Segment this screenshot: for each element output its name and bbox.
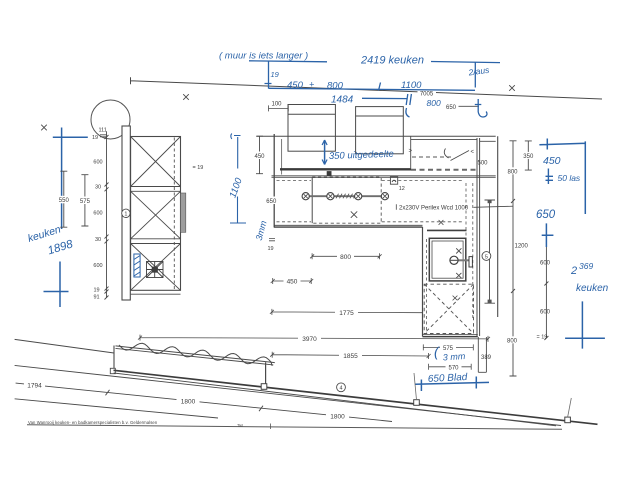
svg-text:800: 800: [427, 98, 441, 108]
svg-text:1775: 1775: [339, 310, 354, 317]
svg-text:19: 19: [93, 288, 99, 294]
svg-text:= 19: = 19: [193, 165, 204, 171]
svg-text:19: 19: [268, 246, 274, 252]
svg-text:2419 keuken: 2419 keuken: [360, 55, 424, 67]
svg-text:350 uitgedeelte: 350 uitgedeelte: [329, 149, 394, 162]
svg-text:+: +: [309, 80, 314, 90]
svg-text:100: 100: [271, 101, 282, 107]
svg-text:2: 2: [570, 265, 577, 277]
svg-text:30: 30: [95, 237, 101, 243]
svg-text:>: >: [409, 149, 413, 155]
svg-text:450: 450: [287, 279, 298, 286]
svg-text:( muur is iets langer ): ( muur is iets langer ): [219, 51, 308, 62]
svg-text:450: 450: [287, 80, 304, 91]
svg-text:650: 650: [266, 199, 277, 205]
svg-text:3970: 3970: [302, 336, 317, 343]
svg-text:550: 550: [59, 198, 70, 204]
svg-text:1100: 1100: [401, 80, 422, 91]
svg-text:600: 600: [540, 260, 551, 266]
svg-text:1855: 1855: [343, 353, 358, 360]
svg-text:1484: 1484: [331, 95, 354, 106]
svg-text:650: 650: [536, 209, 556, 221]
svg-text:<: <: [471, 150, 475, 156]
svg-text:600: 600: [93, 160, 102, 166]
svg-text:keuken: keuken: [576, 283, 609, 294]
svg-text:12: 12: [399, 186, 405, 192]
svg-text:19: 19: [92, 135, 98, 141]
svg-text:Tiel: Tiel: [237, 423, 243, 427]
svg-text:3 mm: 3 mm: [442, 351, 466, 363]
svg-text:600: 600: [540, 309, 551, 315]
svg-text:Van Wanrooij keuken- en badkam: Van Wanrooij keuken- en badkamerspeciali…: [28, 420, 158, 425]
svg-text:500: 500: [477, 160, 488, 166]
svg-text:7005: 7005: [420, 91, 434, 97]
svg-text:1: 1: [124, 212, 127, 218]
svg-text:600: 600: [93, 211, 102, 217]
svg-text:600: 600: [93, 263, 102, 269]
svg-text:450: 450: [543, 155, 561, 167]
svg-text:800: 800: [507, 339, 518, 345]
svg-text:1800: 1800: [181, 398, 196, 405]
svg-text:1794: 1794: [27, 382, 42, 389]
svg-text:91: 91: [93, 295, 99, 301]
svg-text:570: 570: [448, 366, 459, 372]
svg-text:369: 369: [579, 261, 593, 271]
svg-text:575: 575: [80, 199, 91, 205]
svg-text:30: 30: [95, 185, 101, 191]
svg-text:111: 111: [99, 128, 107, 134]
svg-text:5: 5: [485, 254, 488, 260]
svg-text:650 Blad: 650 Blad: [428, 372, 468, 385]
svg-text:1200: 1200: [515, 244, 529, 250]
svg-text:350: 350: [523, 154, 534, 160]
svg-text:800: 800: [340, 254, 351, 261]
svg-text:50 las: 50 las: [558, 173, 581, 183]
svg-text:19: 19: [271, 70, 280, 79]
svg-text:2x230V Perilex Wcd 1000: 2x230V Perilex Wcd 1000: [399, 205, 469, 211]
svg-text:1800: 1800: [330, 413, 345, 420]
svg-text:= 19: = 19: [537, 335, 548, 341]
svg-text:650: 650: [446, 105, 457, 111]
svg-text:389: 389: [481, 355, 492, 361]
svg-text:800: 800: [507, 170, 518, 176]
svg-text:4: 4: [339, 386, 342, 392]
svg-text:800: 800: [327, 81, 344, 92]
svg-text:450: 450: [254, 154, 265, 160]
